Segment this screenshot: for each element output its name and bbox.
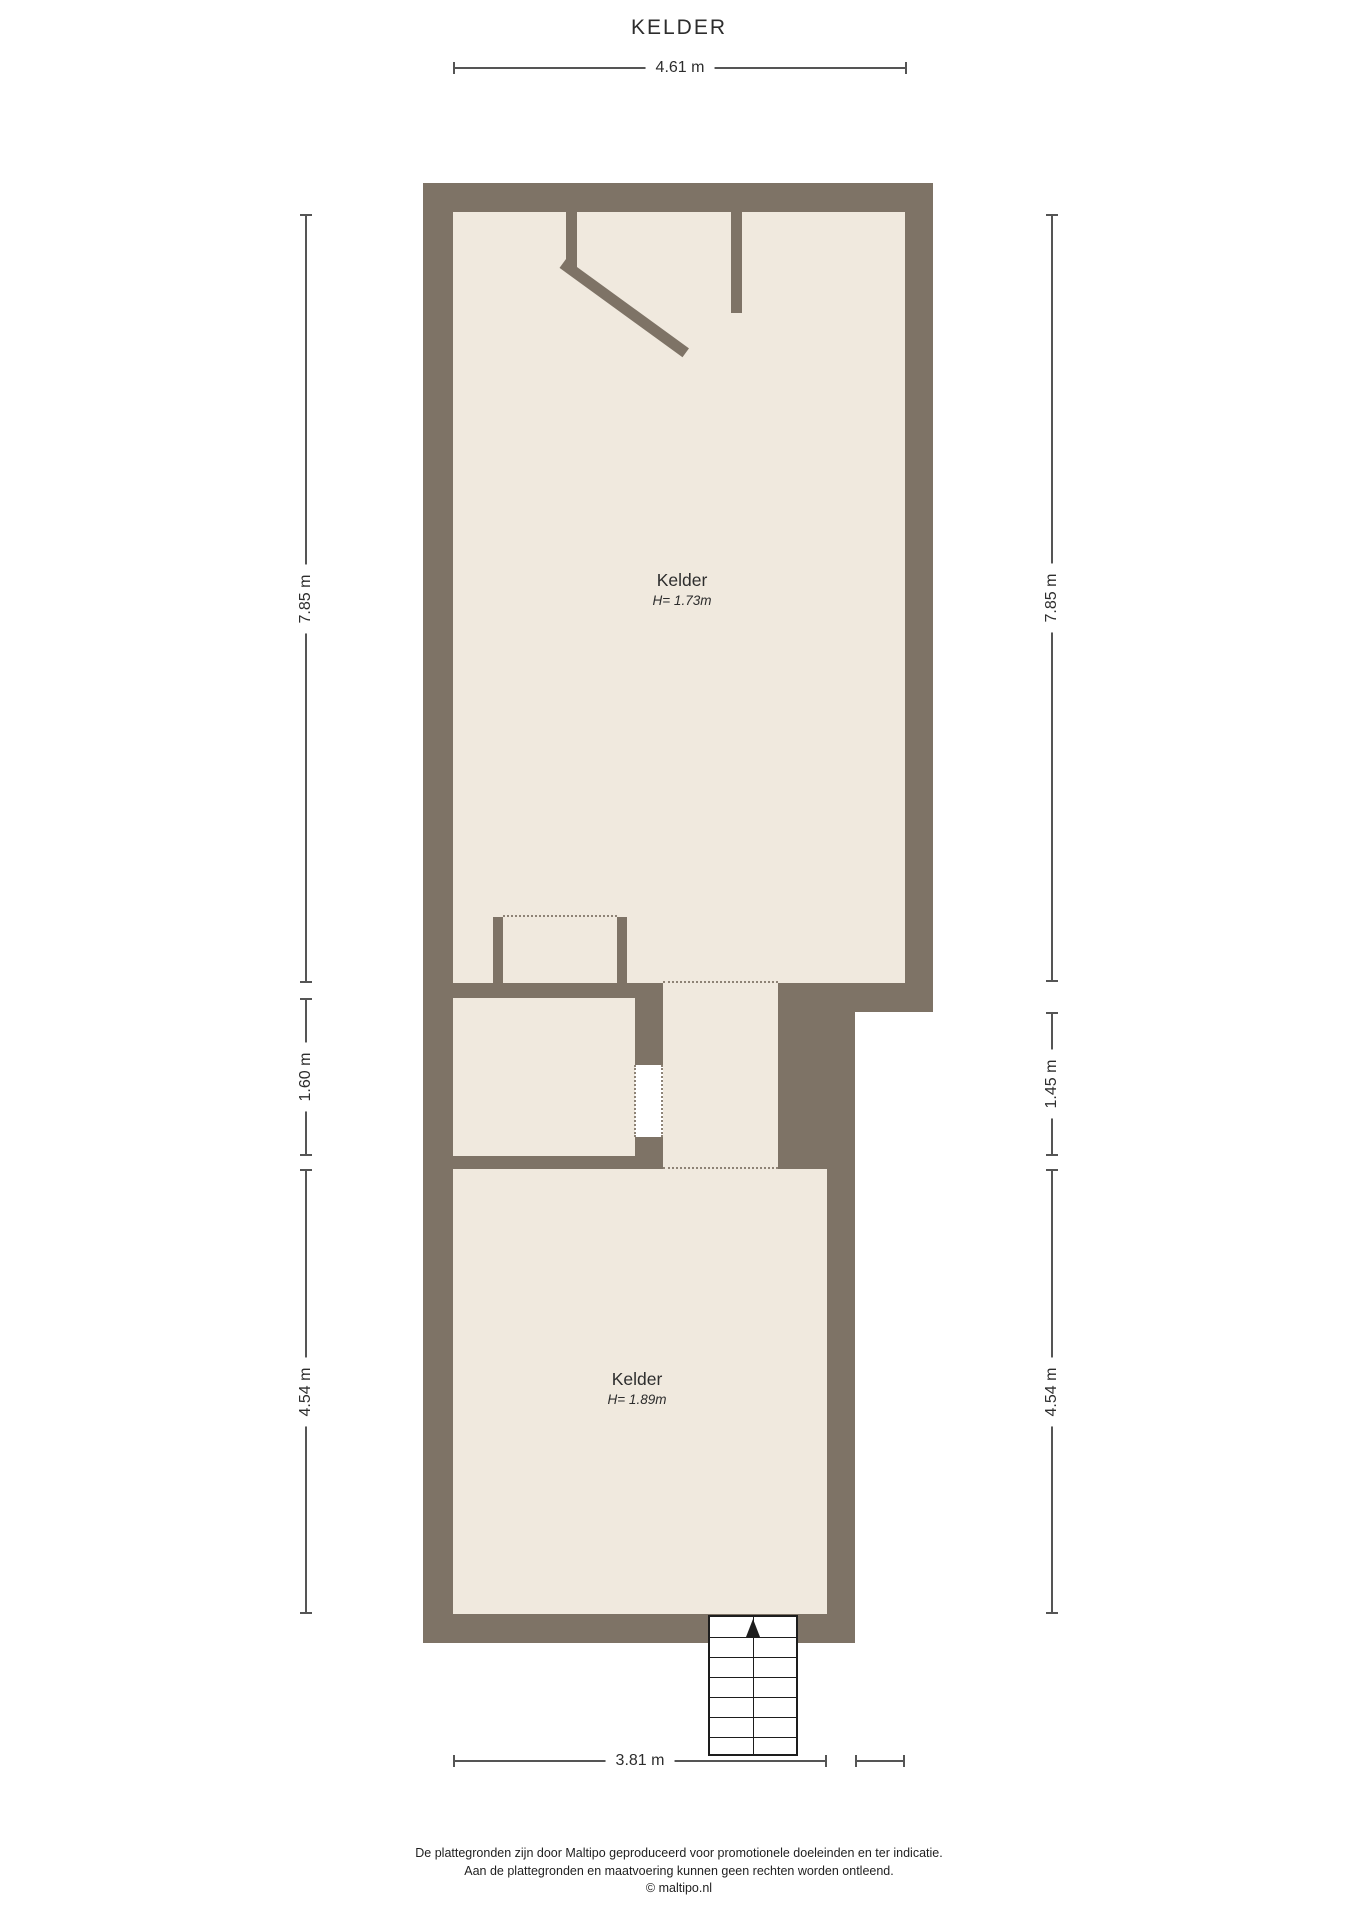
page-title: KELDER xyxy=(0,16,1358,40)
dimension-label: 7.85 m xyxy=(296,564,316,633)
dimension-right-lower: 4.54 m xyxy=(1051,1169,1053,1614)
dimension-left-lower: 4.54 m xyxy=(305,1169,307,1614)
dimension-label: 4.61 m xyxy=(646,58,715,78)
stairs-up-arrow-icon xyxy=(746,1619,760,1637)
floorplan-page: KELDER Kelder H= 1.73m Kelder xyxy=(0,0,1358,1920)
footer-line-2: Aan de plattegronden en maatvoering kunn… xyxy=(0,1863,1358,1881)
dimension-top: 4.61 m xyxy=(453,67,907,69)
dimension-label: 1.60 m xyxy=(296,1043,316,1112)
dashed-landing-top xyxy=(663,981,778,983)
wall-step xyxy=(778,983,905,1012)
wall-landing-left-upper xyxy=(635,983,663,1065)
dimension-label: 4.54 m xyxy=(296,1357,316,1426)
wall-mid-upper xyxy=(453,983,635,998)
dimension-label: 7.85 m xyxy=(1042,564,1062,633)
dashed-opening-left xyxy=(634,1065,636,1137)
wall-right-mass xyxy=(778,1012,855,1169)
room-height: H= 1.73m xyxy=(567,592,797,610)
dimension-right-upper: 7.85 m xyxy=(1051,214,1053,982)
room-label-upper: Kelder H= 1.73m xyxy=(567,568,797,610)
wall-left xyxy=(423,212,453,1643)
floor-landing xyxy=(663,983,778,1169)
wall-landing-left-lower xyxy=(635,1137,663,1169)
footer-line-1: De plattegronden zijn door Maltipo gepro… xyxy=(0,1845,1358,1863)
room-height: H= 1.89m xyxy=(522,1391,752,1409)
room-name: Kelder xyxy=(522,1367,752,1391)
dimension-bottom: 3.81 m xyxy=(453,1760,827,1762)
wall-top xyxy=(423,183,933,212)
room-name: Kelder xyxy=(567,568,797,592)
dimension-label: 4.54 m xyxy=(1042,1357,1062,1426)
floor-room-middle xyxy=(453,998,635,1156)
footer-disclaimer: De plattegronden zijn door Maltipo gepro… xyxy=(0,1845,1358,1898)
wall-mid-lower xyxy=(453,1156,635,1169)
wall-niche-stub-right xyxy=(617,917,627,983)
wall-niche-stub-left xyxy=(493,917,503,983)
dimension-left-upper: 7.85 m xyxy=(305,214,307,983)
dashed-opening-right xyxy=(661,1065,663,1137)
dimension-left-middle: 1.60 m xyxy=(305,998,307,1156)
dimension-bottom-step xyxy=(855,1760,905,1762)
wall-right-lower xyxy=(827,1169,855,1643)
stair-divider xyxy=(753,1617,754,1754)
room-label-lower: Kelder H= 1.89m xyxy=(522,1367,752,1409)
stairs xyxy=(708,1615,798,1756)
dimension-label: 1.45 m xyxy=(1042,1050,1062,1119)
dashed-landing-bottom xyxy=(663,1167,778,1169)
wall-right-upper xyxy=(905,212,933,1012)
footer-line-3: © maltipo.nl xyxy=(0,1880,1358,1898)
wall-door-stub-right xyxy=(731,212,742,313)
dashed-niche-top xyxy=(503,915,617,917)
dimension-label: 3.81 m xyxy=(606,1751,675,1771)
dimension-right-middle: 1.45 m xyxy=(1051,1012,1053,1156)
